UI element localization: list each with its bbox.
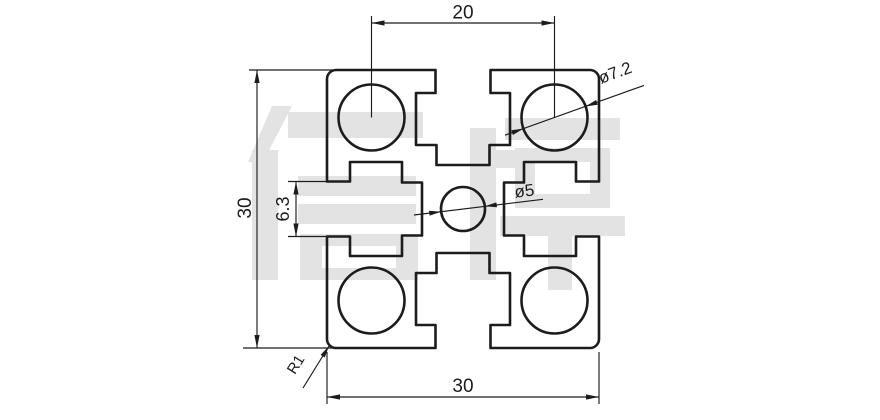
dim-label-bore-pitch: 20 <box>452 3 473 24</box>
dim-label-overall-width: 30 <box>452 376 473 397</box>
dim-label-corner-radius: R1 <box>284 352 309 377</box>
drawing-canvas: 20 30 6.3 30 ø7.2 ø5 R1 <box>0 0 880 420</box>
dim-label-slot-opening: 6.3 <box>273 196 293 221</box>
dim-label-center-bore: ø5 <box>513 180 535 201</box>
dim-label-corner-bore: ø7.2 <box>596 58 634 87</box>
arrowhead-corner-bore-2 <box>586 100 598 106</box>
watermark-glyph-1 <box>248 106 423 280</box>
dim-label-overall-height: 30 <box>235 197 256 218</box>
profile-drawing-svg: 20 30 6.3 30 ø7.2 ø5 R1 <box>0 0 880 420</box>
